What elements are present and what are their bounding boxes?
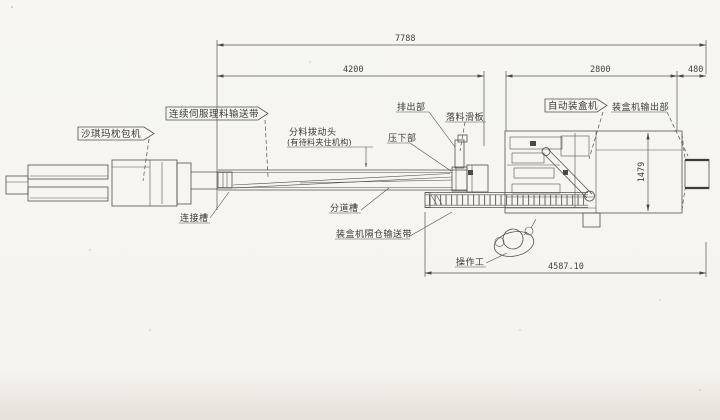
dimension-lines: 7788 4200 2800 480 1479 4587.10 xyxy=(217,34,706,277)
dim-overall-length: 7788 xyxy=(395,34,415,44)
cartoner-output-section xyxy=(682,134,709,210)
machine-buffer-conveyor xyxy=(425,193,588,208)
label-drop-chute: 落料滑板 xyxy=(446,111,484,123)
operator-figure xyxy=(492,219,536,260)
label-auto-cartoner: 自动装盒机 xyxy=(548,100,598,112)
label-discharge: 排出部 xyxy=(397,101,426,113)
label-divider-head: 分料拨动头 xyxy=(289,126,337,138)
press-down-post xyxy=(455,140,464,168)
label-divide-channel: 分道槽 xyxy=(330,202,359,214)
dim-cartoner-depth: 1479 xyxy=(637,162,647,182)
label-operator: 操作工 xyxy=(456,256,485,268)
callout-operator: 操作工 xyxy=(455,253,507,268)
machine-auto-cartoner xyxy=(505,131,709,227)
callout-labels: 沙琪玛枕包机 连续伺服理料输送带 自动装盒机 分料拨动头 (有待料夹住机构) 排… xyxy=(78,99,688,268)
dim-servo-conveyor-length: 4200 xyxy=(343,65,363,75)
dim-output-length: 480 xyxy=(688,65,703,75)
flag-pillow-packer: 沙琪玛枕包机 xyxy=(78,127,154,181)
callout-drop-chute: 落料滑板 xyxy=(445,111,486,151)
callout-divide-channel: 分道槽 xyxy=(329,188,389,214)
connect-trough-box xyxy=(218,172,232,188)
machine-servo-conveyor xyxy=(218,135,488,192)
scan-artifacts xyxy=(11,6,701,391)
callout-buffer-conveyor: 装盒机隔仓输送带 xyxy=(335,212,452,240)
pusher-block xyxy=(468,170,473,175)
label-servo-conveyor: 连续伺服理料输送带 xyxy=(169,108,259,120)
label-divider-head-note: (有待料夹住机构) xyxy=(287,137,352,147)
label-connect-trough: 连接槽 xyxy=(180,212,209,224)
drawing-canvas: 7788 4200 2800 480 1479 4587.10 xyxy=(0,0,720,420)
scanned-engineering-drawing: 7788 4200 2800 480 1479 4587.10 xyxy=(0,0,720,420)
label-press-down: 压下部 xyxy=(388,132,417,144)
dim-working-zone-length: 4587.10 xyxy=(548,262,584,272)
label-buffer-conveyor: 装盒机隔仓输送带 xyxy=(336,228,412,240)
dim-cartoner-length: 2800 xyxy=(590,65,610,75)
callout-cartoner-output: 装盒机输出部 xyxy=(611,101,688,156)
callout-connect-trough: 连接槽 xyxy=(179,192,229,224)
label-cartoner-output: 装盒机输出部 xyxy=(612,101,669,113)
cartoner-foot xyxy=(583,213,600,227)
machine-pillow-packer xyxy=(6,160,218,206)
label-pillow-packer: 沙琪玛枕包机 xyxy=(81,128,141,140)
callout-divider-head: 分料拨动头 (有待料夹住机构) xyxy=(287,126,373,167)
callout-press-down: 压下部 xyxy=(387,132,451,171)
